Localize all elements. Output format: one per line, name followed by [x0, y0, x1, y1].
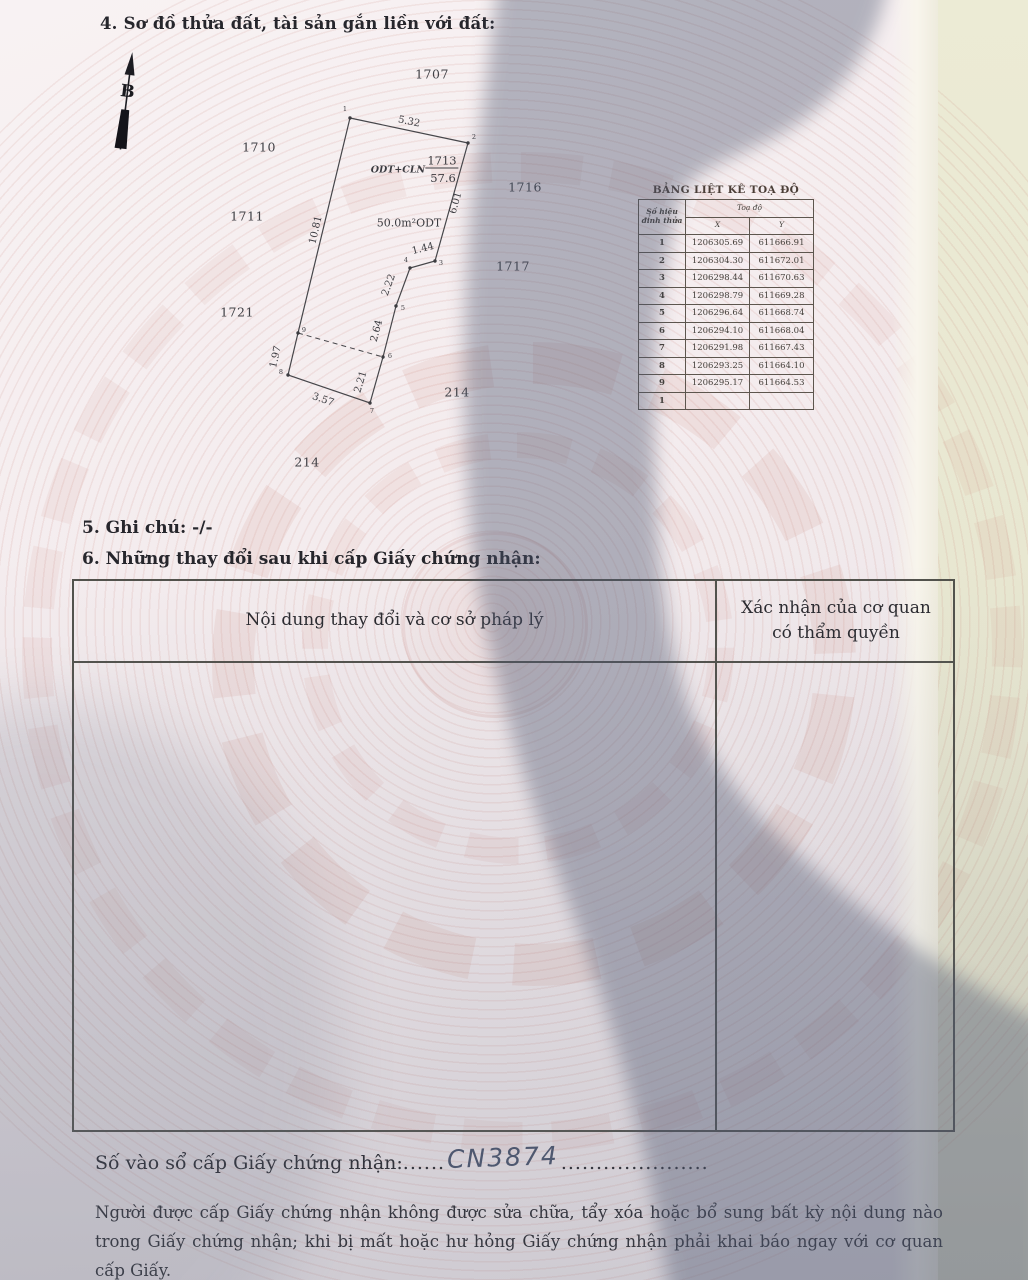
coord-y-cell: 611668.04 [750, 322, 814, 340]
changes-confirmation-body-cell [717, 663, 955, 1132]
coordinate-table-row: 21206304.30611672.01 [639, 252, 814, 270]
section6-title: 6. Những thay đổi sau khi cấp Giấy chứng… [82, 549, 541, 569]
vertex-id-cell: 5 [639, 305, 686, 323]
vertex-id-cell: 1 [639, 392, 686, 410]
coord-y-cell: 611672.01 [750, 252, 814, 270]
vertex-id-cell: 8 [639, 357, 686, 375]
coord-x-cell: 1206291.98 [686, 340, 750, 358]
north-label: B [119, 81, 136, 103]
coordinate-table-header-row: Số hiệu đỉnh thửa Toạ độ [639, 200, 814, 218]
coordinate-table-title: BẢNG LIỆT KÊ TOẠ ĐỘ [638, 184, 814, 196]
changes-content-body-cell [74, 663, 715, 1132]
section5-note: 5. Ghi chú: -/- [82, 518, 213, 538]
coord-y-cell: 611664.53 [750, 375, 814, 393]
coordinate-table: BẢNG LIỆT KÊ TOẠ ĐỘ Số hiệu đỉnh thửa To… [638, 184, 814, 410]
coordinate-table-row: 91206295.17611664.53 [639, 375, 814, 393]
coord-x-cell: 1206296.64 [686, 305, 750, 323]
coord-x-header: X [686, 217, 750, 235]
vertex-id-cell: 2 [639, 252, 686, 270]
coordinate-table-row: 41206298.79611669.28 [639, 287, 814, 305]
section4-title: 4. Sơ đồ thửa đất, tài sản gắn liền với … [100, 14, 495, 33]
coord-y-cell: 611666.91 [750, 235, 814, 253]
vertex-id-cell: 6 [639, 322, 686, 340]
changes-confirmation-header: Xác nhận của cơ quan có thẩm quyền [717, 581, 955, 661]
vertex-id-cell: 9 [639, 375, 686, 393]
changes-content-header: Nội dung thay đổi và cơ sở pháp lý [74, 581, 715, 661]
registry-label: Số vào sổ cấp Giấy chứng nhận: [95, 1152, 403, 1174]
coord-x-cell [686, 392, 750, 410]
coordinate-table-row: 11206305.69611666.91 [639, 235, 814, 253]
coord-x-cell: 1206298.79 [686, 287, 750, 305]
changes-confirmation-header-line1: Xác nhận của cơ quan [741, 596, 931, 622]
changes-confirmation-header-line2: có thẩm quyền [772, 621, 900, 647]
coord-x-cell: 1206305.69 [686, 235, 750, 253]
coord-y-header: Y [750, 217, 814, 235]
vertex-id-cell: 4 [639, 287, 686, 305]
coordinate-table-row: 81206293.25611664.10 [639, 357, 814, 375]
coord-y-cell: 611664.10 [750, 357, 814, 375]
photographed-land-certificate-page: 4. Sơ đồ thửa đất, tài sản gắn liền với … [0, 0, 1028, 1280]
footer-warning-note: Người được cấp Giấy chứng nhận không đượ… [95, 1198, 943, 1280]
coord-x-cell: 1206298.44 [686, 270, 750, 288]
coord-header: Toạ độ [686, 200, 814, 218]
coordinate-table-row: 61206294.10611668.04 [639, 322, 814, 340]
coord-y-cell: 611667.43 [750, 340, 814, 358]
coord-x-cell: 1206295.17 [686, 375, 750, 393]
coordinate-table-row: 51206296.64611668.74 [639, 305, 814, 323]
coord-y-cell: 611668.74 [750, 305, 814, 323]
changes-table: Nội dung thay đổi và cơ sở pháp lý Xác n… [72, 579, 955, 1132]
coordinate-table-row: 31206298.44611670.63 [639, 270, 814, 288]
coordinate-table-grid: Số hiệu đỉnh thửa Toạ độ X Y 11206305.69… [638, 199, 814, 410]
coordinate-table-row: 71206291.98611667.43 [639, 340, 814, 358]
footer-line-2: Giấy chứng nhận; khi bị mất hoặc hư hỏng… [95, 1232, 943, 1280]
coordinate-table-row: 1 [639, 392, 814, 410]
coord-y-cell: 611670.63 [750, 270, 814, 288]
dotted-leader-tail: ..................... [561, 1152, 709, 1174]
coord-x-cell: 1206293.25 [686, 357, 750, 375]
registry-number-line: Số vào sổ cấp Giấy chứng nhận:......CN38… [95, 1146, 709, 1175]
coord-y-cell: 611669.28 [750, 287, 814, 305]
registry-number-handwritten: CN3874 [447, 1141, 560, 1174]
vertex-id-cell: 3 [639, 270, 686, 288]
vertex-id-header: Số hiệu đỉnh thửa [639, 200, 686, 235]
coord-x-cell: 1206304.30 [686, 252, 750, 270]
coord-x-cell: 1206294.10 [686, 322, 750, 340]
coord-y-cell [750, 392, 814, 410]
vertex-id-cell: 1 [639, 235, 686, 253]
vertex-id-cell: 7 [639, 340, 686, 358]
dotted-leader: ...... [403, 1152, 445, 1174]
